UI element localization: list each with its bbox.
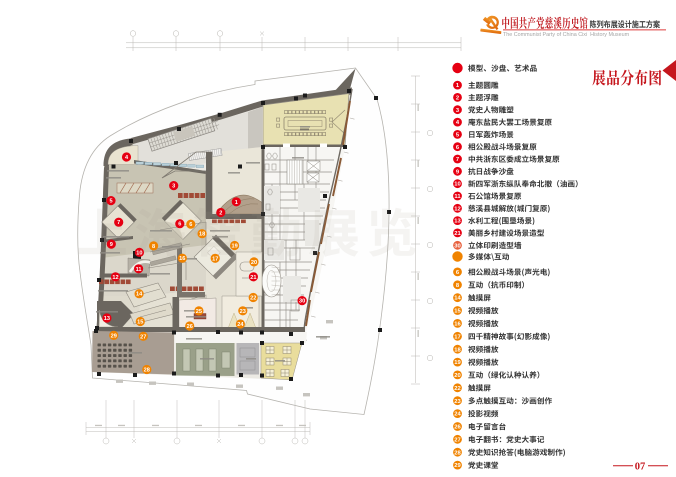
svg-text:21: 21 bbox=[250, 275, 256, 281]
svg-text:29: 29 bbox=[454, 463, 461, 469]
svg-text:21: 21 bbox=[454, 231, 461, 237]
svg-text:1: 1 bbox=[235, 200, 238, 206]
svg-text:28: 28 bbox=[144, 368, 150, 374]
svg-text:2: 2 bbox=[456, 96, 459, 102]
svg-text:27: 27 bbox=[140, 334, 146, 340]
svg-text:26: 26 bbox=[187, 324, 193, 330]
svg-text:11: 11 bbox=[454, 194, 461, 200]
svg-text:10: 10 bbox=[136, 250, 142, 256]
svg-text:16: 16 bbox=[454, 322, 461, 328]
svg-text:The Communist Party of China C: The Communist Party of China Cixi Histor… bbox=[503, 32, 630, 38]
svg-text:12: 12 bbox=[454, 206, 460, 212]
svg-text:18: 18 bbox=[454, 347, 461, 353]
svg-text:29: 29 bbox=[111, 333, 117, 339]
svg-text:11: 11 bbox=[136, 267, 142, 273]
svg-text:7: 7 bbox=[456, 157, 459, 163]
svg-text:5: 5 bbox=[109, 199, 112, 205]
svg-text:20: 20 bbox=[454, 373, 460, 379]
svg-text:24: 24 bbox=[237, 322, 244, 328]
svg-text:15: 15 bbox=[454, 309, 461, 315]
svg-text:27: 27 bbox=[454, 437, 460, 443]
svg-text:19: 19 bbox=[454, 360, 461, 366]
svg-text:16: 16 bbox=[179, 256, 185, 262]
svg-text:25: 25 bbox=[196, 309, 202, 315]
svg-text:12: 12 bbox=[112, 275, 118, 281]
svg-text:8: 8 bbox=[152, 244, 155, 250]
svg-text:7: 7 bbox=[117, 220, 120, 226]
svg-text:3: 3 bbox=[172, 184, 175, 190]
svg-text:18: 18 bbox=[199, 232, 205, 238]
svg-text:22: 22 bbox=[250, 296, 256, 302]
svg-text:17: 17 bbox=[212, 256, 218, 262]
svg-text:20: 20 bbox=[251, 260, 257, 266]
svg-text:07: 07 bbox=[635, 462, 646, 473]
svg-text:14: 14 bbox=[136, 292, 143, 298]
svg-text:2: 2 bbox=[219, 211, 222, 217]
svg-text:22: 22 bbox=[454, 386, 460, 392]
svg-text:14: 14 bbox=[454, 296, 461, 302]
svg-text:23: 23 bbox=[454, 399, 461, 405]
svg-text:9: 9 bbox=[110, 242, 113, 248]
svg-text:17: 17 bbox=[454, 334, 460, 340]
svg-text:13: 13 bbox=[104, 316, 110, 322]
svg-text:19: 19 bbox=[231, 244, 237, 250]
svg-text:23: 23 bbox=[240, 309, 246, 315]
svg-text:13: 13 bbox=[454, 219, 461, 225]
svg-text:30: 30 bbox=[299, 299, 305, 305]
svg-text:6: 6 bbox=[178, 222, 181, 228]
svg-text:6: 6 bbox=[189, 222, 192, 228]
svg-text:30: 30 bbox=[454, 243, 460, 249]
svg-text:26: 26 bbox=[454, 425, 461, 431]
svg-text:24: 24 bbox=[454, 412, 461, 418]
svg-text:28: 28 bbox=[454, 450, 461, 456]
svg-text:15: 15 bbox=[137, 320, 143, 326]
svg-text:10: 10 bbox=[454, 182, 460, 188]
